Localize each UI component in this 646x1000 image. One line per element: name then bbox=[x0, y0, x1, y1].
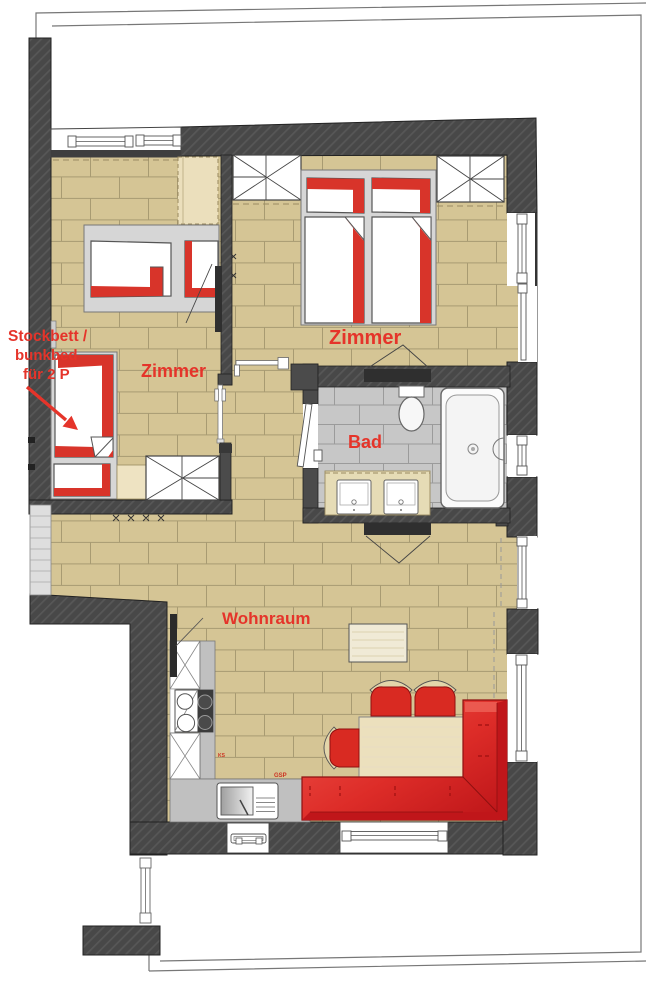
svg-text:Zimmer: Zimmer bbox=[329, 327, 401, 349]
svg-text:Bad: Bad bbox=[348, 432, 382, 452]
svg-text:Stockbett /: Stockbett / bbox=[8, 328, 88, 345]
svg-text:KS: KS bbox=[218, 753, 226, 759]
svg-text:Zimmer: Zimmer bbox=[141, 361, 206, 381]
svg-text:für 2 P: für 2 P bbox=[23, 366, 70, 383]
svg-text:bunkbed: bunkbed bbox=[15, 347, 78, 364]
svg-text:Wohnraum: Wohnraum bbox=[222, 609, 310, 628]
svg-text:GSP: GSP bbox=[274, 773, 287, 779]
